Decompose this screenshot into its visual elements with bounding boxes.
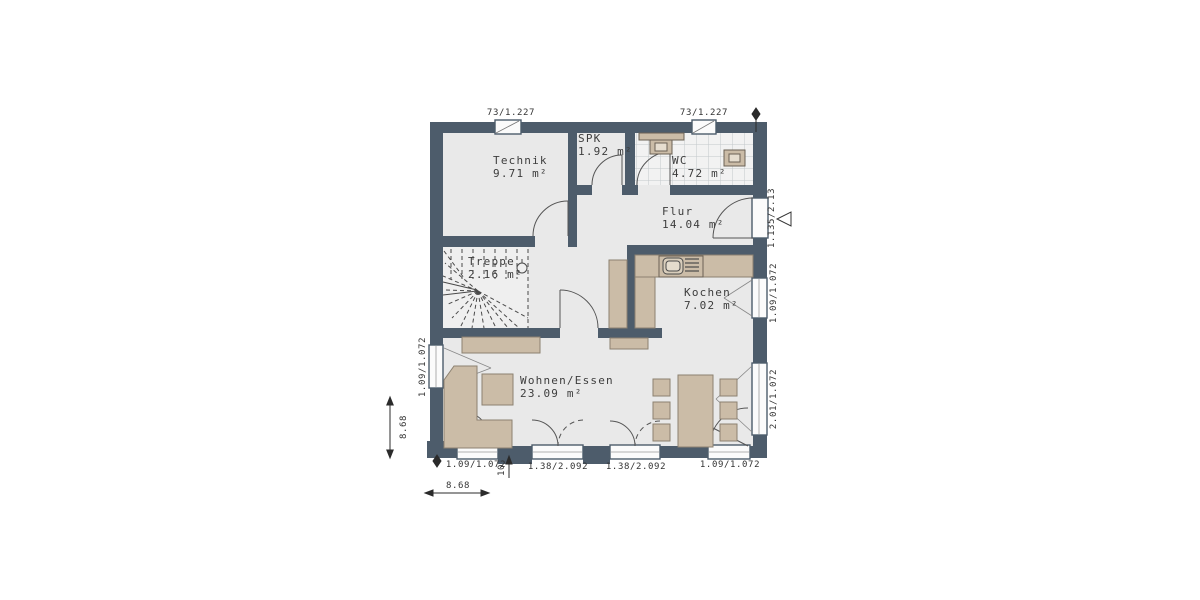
dim-bottom-door-2: 1.38/2.092 <box>606 462 666 472</box>
dim-left-total: 8.68 <box>399 415 409 439</box>
entrance-door-opening <box>752 198 768 238</box>
chair <box>653 402 670 419</box>
chair <box>720 402 737 419</box>
dim-right-kitchen-window: 1.09/1.072 <box>769 263 779 323</box>
dining-table <box>678 375 713 447</box>
chair <box>653 424 670 441</box>
kitchen-sideboard <box>610 338 648 349</box>
coffee-table <box>482 374 513 405</box>
room-label-wc: WC4.72 m² <box>672 154 727 180</box>
sideboard <box>462 337 540 353</box>
room-label-wohnen: Wohnen/Essen23.09 m² <box>520 374 614 400</box>
dim-bottom-window-2: 1.09/1.072 <box>700 460 760 470</box>
window-top-1 <box>495 120 521 134</box>
room-label-spk: SPK1.92 m² <box>578 132 633 158</box>
dim-top-window-1: 73/1.227 <box>487 108 535 118</box>
left-total-dimension <box>387 397 393 458</box>
window-bottom-2 <box>708 445 750 459</box>
toilet-icon <box>724 150 745 166</box>
dim-bottom-total: 8.68 <box>446 481 470 491</box>
floor-plan-drawing <box>0 0 1200 600</box>
dim-left-window: 1.09/1.072 <box>418 337 428 397</box>
room-label-technik: Technik9.71 m² <box>493 154 548 180</box>
chair <box>653 379 670 396</box>
room-label-kochen: Kochen7.02 m² <box>684 286 739 312</box>
floor-plan: Technik9.71 m² SPK1.92 m² WC4.72 m² Flur… <box>0 0 1200 600</box>
chair <box>720 379 737 396</box>
room-label-treppe: Treppe2.16 m² <box>468 255 523 281</box>
window-left <box>429 345 443 388</box>
terrace-door-2 <box>610 445 660 459</box>
chair <box>720 424 737 441</box>
entrance-arrow-icon <box>777 212 791 226</box>
window-right-kitchen <box>752 278 767 318</box>
dim-top-window-2: 73/1.227 <box>680 108 728 118</box>
dim-right-living-window: 2.01/1.072 <box>769 369 779 429</box>
dim-threshold: 10 <box>497 464 507 476</box>
kitchen-sink-icon <box>663 258 683 274</box>
room-label-flur: Flur14.04 m² <box>662 205 725 231</box>
tall-cabinet <box>609 260 627 328</box>
dining-furniture <box>653 375 737 447</box>
terrace-door-1 <box>532 445 583 459</box>
dim-entrance-door: 1.135/2.13 <box>767 188 777 248</box>
dim-bottom-door-1: 1.38/2.092 <box>528 462 588 472</box>
window-right-living <box>752 363 767 435</box>
window-top-2 <box>692 120 716 134</box>
